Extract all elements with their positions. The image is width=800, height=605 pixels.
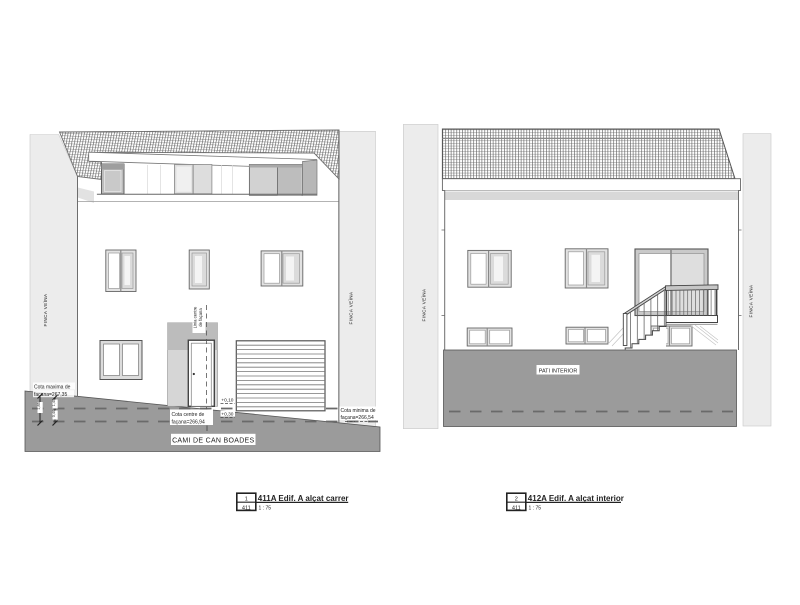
svg-text:0,40: 0,40 [52,410,56,417]
svg-text:Cota maxima de: Cota maxima de [34,385,71,391]
svg-text:411: 411 [512,505,521,511]
svg-text:411: 411 [242,505,251,511]
svg-text:Linia centre: Linia centre [192,306,197,328]
svg-text:2: 2 [515,497,518,503]
svg-text:CAMI DE CAN BOADES: CAMI DE CAN BOADES [172,438,254,445]
svg-text:+0,30: +0,30 [221,412,233,418]
svg-text:façana=266,94: façana=266,94 [172,419,205,425]
svg-text:FINCA VEÏNA: FINCA VEÏNA [348,291,354,325]
svg-text:1 : 75: 1 : 75 [529,505,542,511]
svg-text:FINCA VEÏNA: FINCA VEÏNA [42,293,48,327]
svg-text:1,85: 1,85 [37,402,41,409]
svg-text:de façana: de façana [198,308,203,327]
svg-text:FINCA VEÏNA: FINCA VEÏNA [748,284,754,318]
svg-text:1,45: 1,45 [52,399,56,406]
svg-text:411A Edif. A alçat carrer: 411A Edif. A alçat carrer [258,494,349,503]
svg-text:façana=266,54: façana=266,54 [341,415,374,421]
svg-text:412A Edif. A alçat interior: 412A Edif. A alçat interior [528,494,624,503]
svg-text:PATI INTERIOR: PATI INTERIOR [539,368,578,374]
svg-text:+0,10: +0,10 [221,398,233,404]
svg-text:Cota centre de: Cota centre de [172,412,205,418]
svg-text:1 : 75: 1 : 75 [259,505,272,511]
svg-text:1: 1 [245,497,248,503]
svg-text:FINCA VEÏNA: FINCA VEÏNA [421,288,427,322]
svg-text:Cota minima de: Cota minima de [341,408,376,414]
